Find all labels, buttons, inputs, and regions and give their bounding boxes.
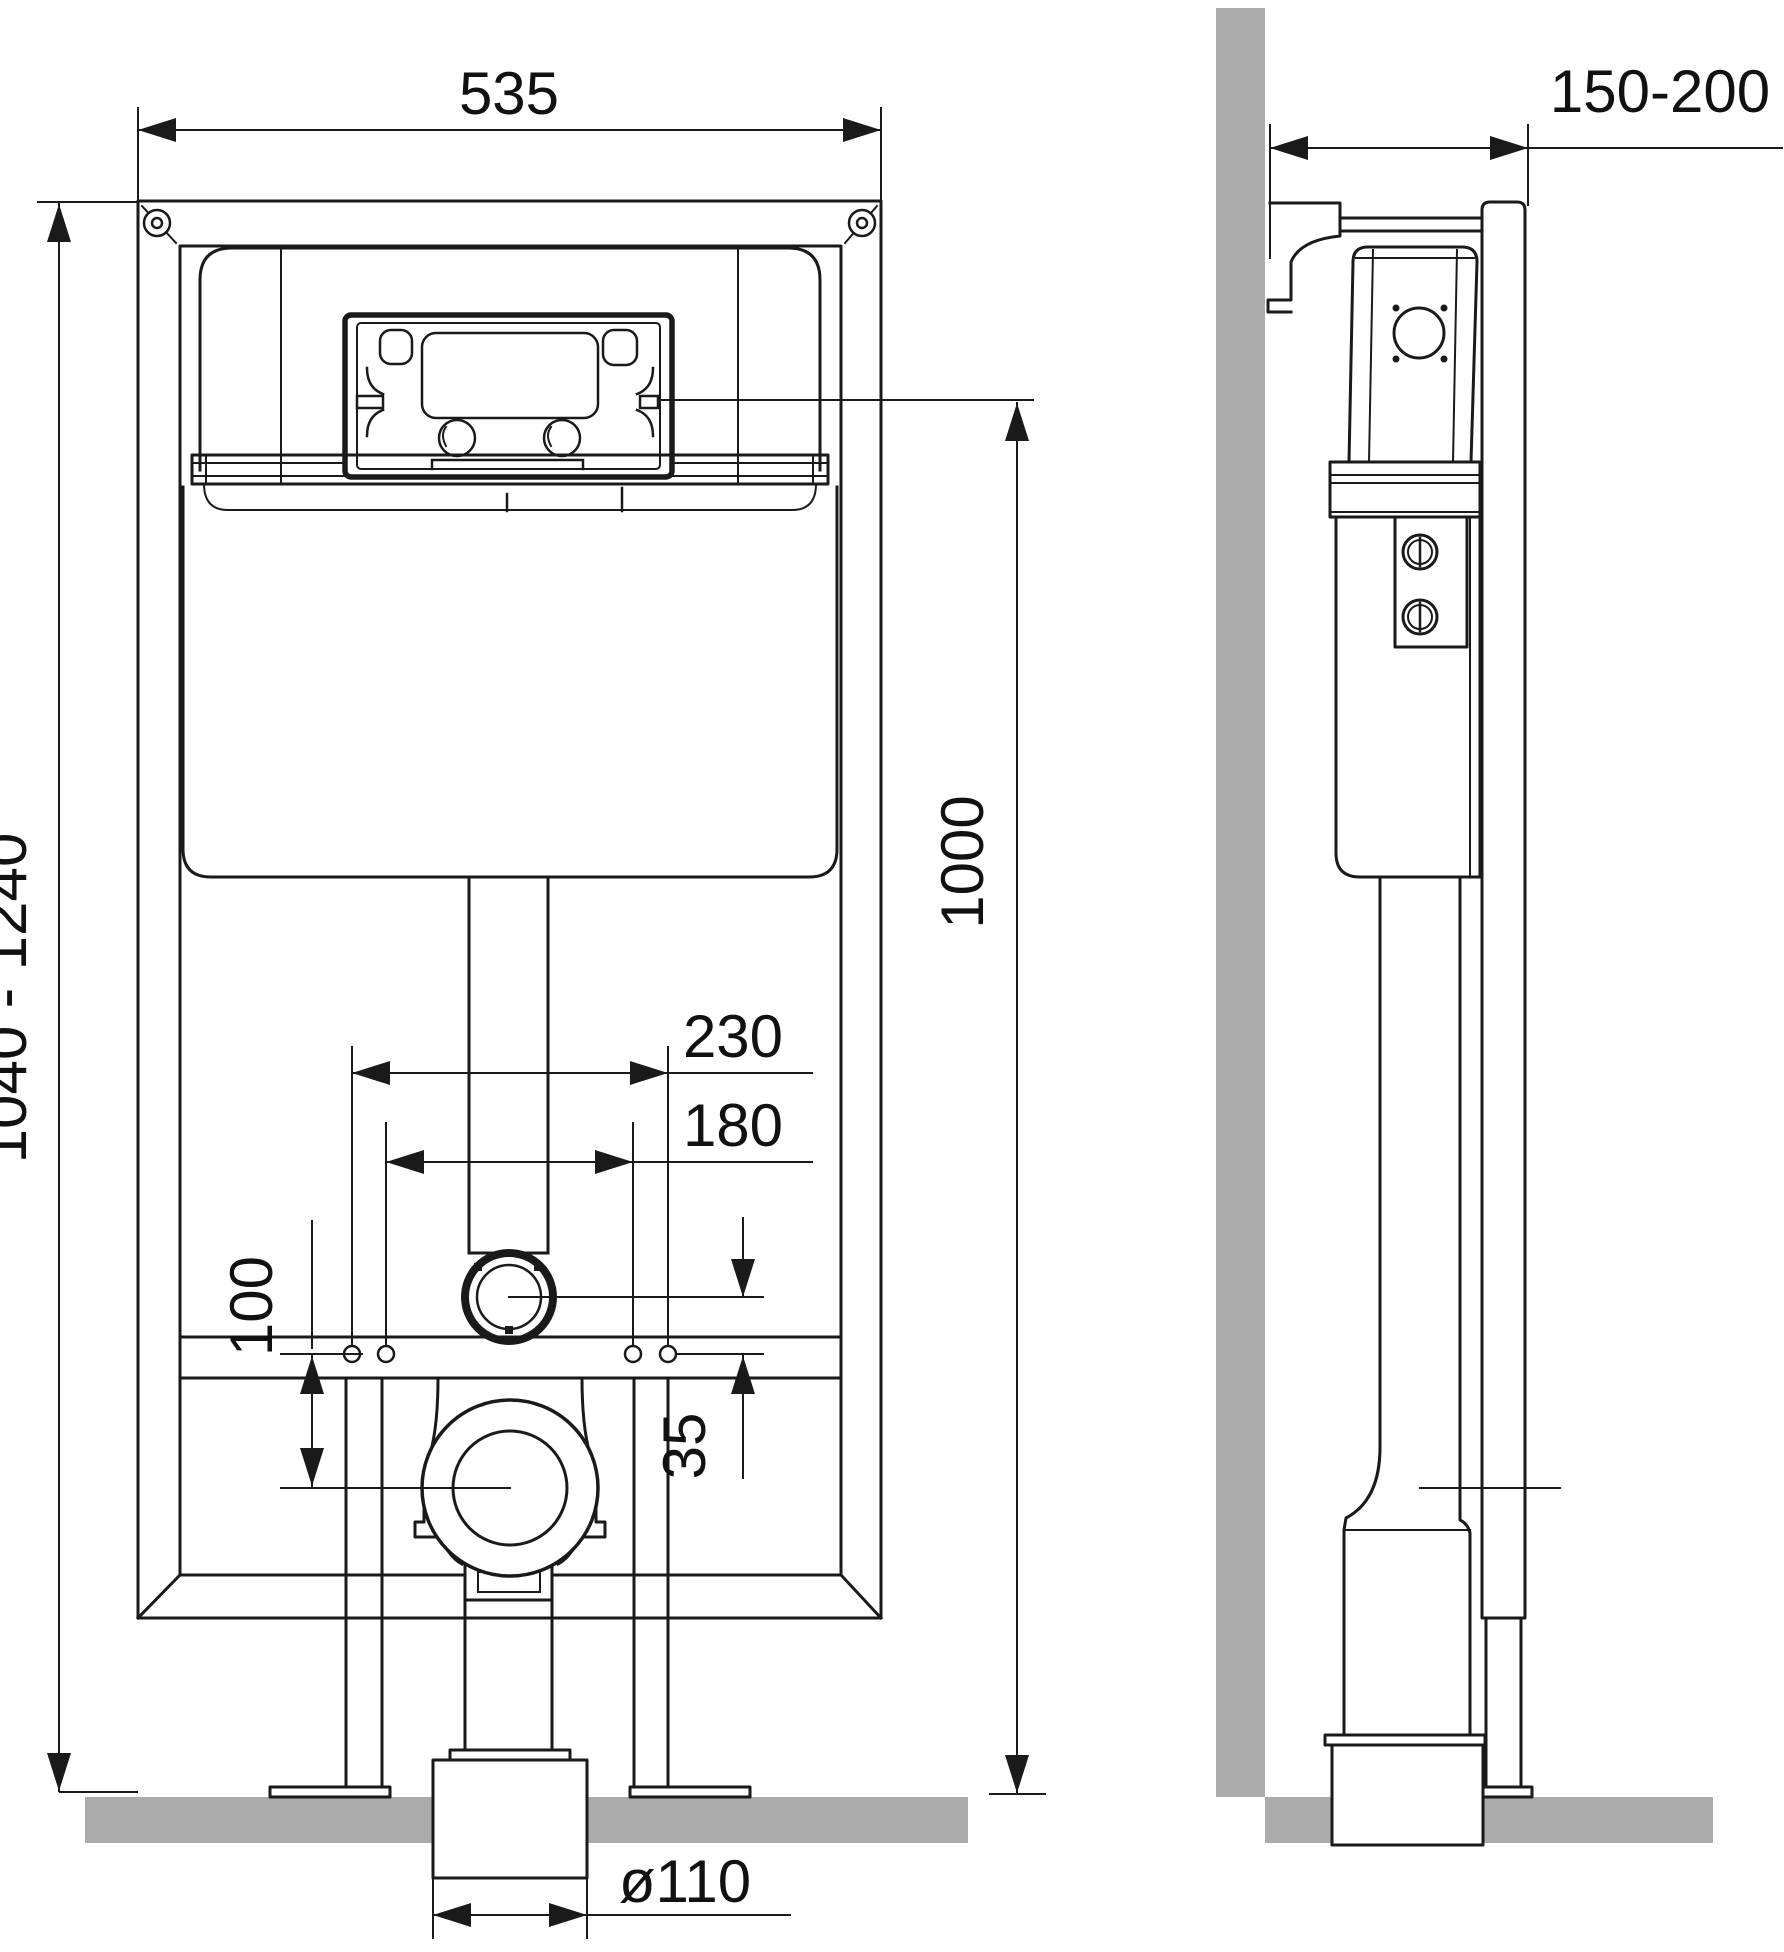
dimension-bolt-spacing-inner: 180 <box>386 1092 812 1344</box>
dim-150-200-label: 150-200 <box>1550 58 1770 125</box>
dimension-height-range: 1040 - 1240 <box>0 202 137 1792</box>
cistern-lower-box-front <box>183 484 837 877</box>
drain-pipe-below-floor-side <box>1332 1745 1483 1845</box>
service-screw-bottom-icon <box>1403 600 1437 634</box>
dim-230-label: 230 <box>683 1003 783 1070</box>
pan-bolt-hole <box>378 1346 394 1362</box>
drain-bend-front <box>415 1378 605 1878</box>
foot-plate-left <box>270 1787 390 1797</box>
dim-180-label: 180 <box>683 1092 783 1159</box>
foot-plate-right <box>630 1787 750 1797</box>
installation-diagram: 535 1040 - 1240 150-200 1000 <box>0 0 1784 1952</box>
dim-1000-label: 1000 <box>929 795 996 928</box>
dimension-frame-width: 535 <box>138 60 881 203</box>
dim-110-label: ø110 <box>619 1848 751 1915</box>
cistern-side <box>1330 247 1480 877</box>
corner-screw-left-icon <box>144 210 170 236</box>
technical-drawing-page: 535 1040 - 1240 150-200 1000 <box>0 0 1784 1952</box>
corner-screw-right-icon <box>849 210 875 236</box>
service-screw-top-icon <box>1403 535 1437 569</box>
dim-35-label: 35 <box>651 1413 718 1480</box>
side-flush-opening <box>1394 308 1444 358</box>
dim-535-label: 535 <box>459 60 559 127</box>
side-view <box>1268 202 1560 1845</box>
wall-section <box>1216 8 1265 1797</box>
pan-bolt-hole <box>625 1346 641 1362</box>
drain-pipe-below-floor <box>433 1760 587 1878</box>
flush-pipe-front <box>465 877 553 1341</box>
flush-plate-access-panel <box>345 315 672 477</box>
pan-bolt-hole <box>660 1346 676 1362</box>
wall-bracket-side <box>1268 203 1340 312</box>
dim-1040-1240-label: 1040 - 1240 <box>0 833 40 1164</box>
dimensions: 535 1040 - 1240 150-200 1000 <box>0 58 1782 1938</box>
dim-100-label: 100 <box>218 1256 285 1356</box>
